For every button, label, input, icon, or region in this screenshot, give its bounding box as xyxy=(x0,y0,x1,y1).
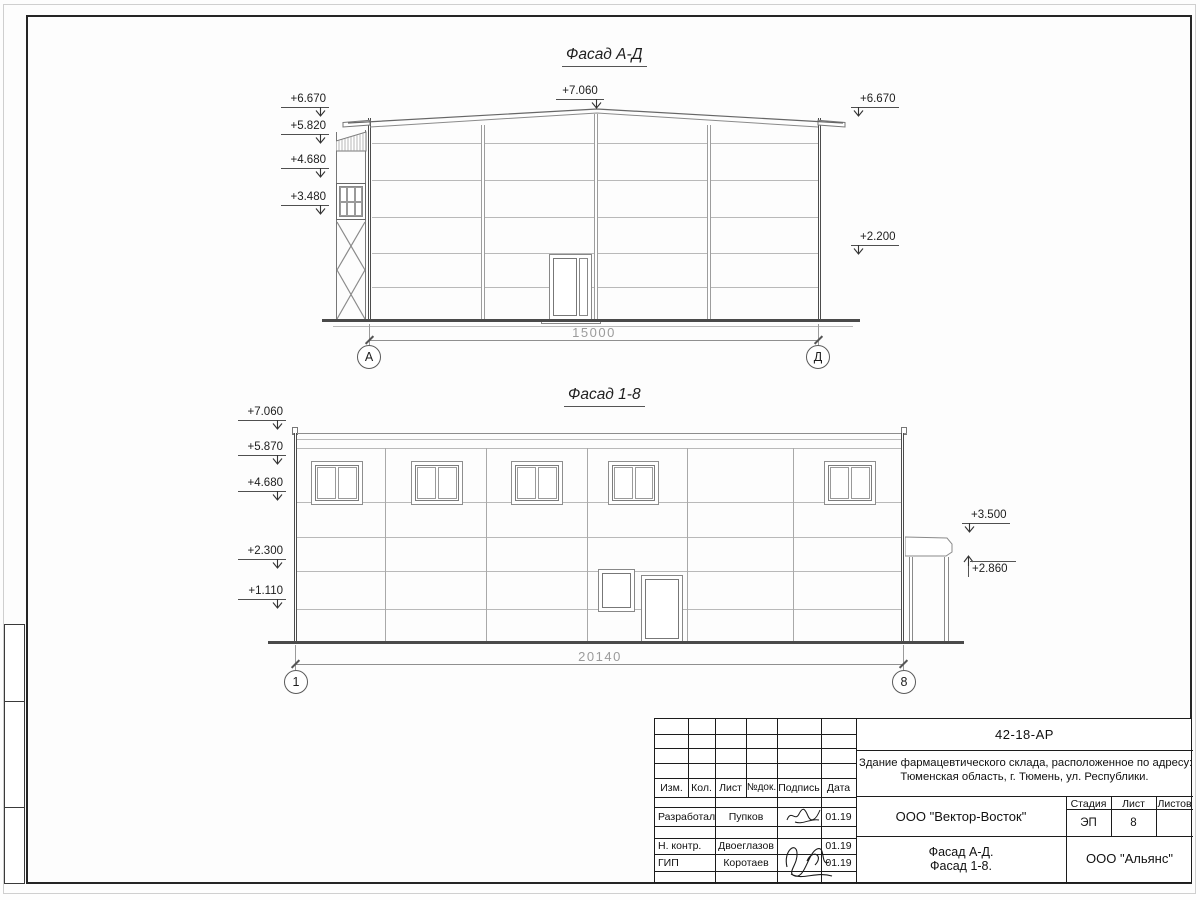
panel-line xyxy=(297,537,903,538)
sheet-number: 8 xyxy=(1111,817,1156,829)
signatory-name: Пупков xyxy=(715,811,777,823)
table-header: Дата xyxy=(821,782,856,794)
extension-line xyxy=(818,324,819,346)
column-line xyxy=(594,114,598,320)
elevation-mark: +2.860 xyxy=(970,561,1016,575)
window-pane xyxy=(317,467,336,499)
column-line xyxy=(587,448,588,641)
table-line xyxy=(856,836,1193,837)
margin-stamp-box xyxy=(4,701,25,808)
window-pane xyxy=(851,467,870,499)
elevation-mark: +6.670 xyxy=(281,93,329,108)
door-leaf xyxy=(553,258,577,316)
elevation-mark: +4.680 xyxy=(281,154,329,169)
elevation-arrow-icon xyxy=(271,455,284,468)
elevation-arrow-icon xyxy=(314,205,327,218)
signature-scribble xyxy=(783,807,823,825)
project-description-line2: Тюменская область, г. Тюмень, ул. Респуб… xyxy=(859,771,1190,783)
window-pane xyxy=(338,467,357,499)
dimension-line xyxy=(295,664,904,665)
elevation-value: +5.870 xyxy=(238,441,286,456)
window xyxy=(824,461,876,505)
tower-window-pane xyxy=(347,202,354,217)
elevation-mark: +7.060 xyxy=(238,406,286,421)
signature-scribble xyxy=(779,835,837,881)
canopy xyxy=(905,535,957,559)
elevation-mark: +5.820 xyxy=(281,120,329,135)
project-description-line1: Здание фармацевтического склада, располо… xyxy=(859,757,1190,769)
signatory-name: Коротаев xyxy=(715,857,777,869)
dimension-text: 15000 xyxy=(549,325,639,340)
elevation-value: +6.670 xyxy=(851,93,899,108)
table-header: Изм. xyxy=(655,782,688,794)
elevation-value: +2.300 xyxy=(238,545,286,560)
door-leaf xyxy=(645,579,679,639)
signature-date: 01.19 xyxy=(821,811,856,823)
small-window xyxy=(598,569,635,612)
elevation-value: +4.680 xyxy=(281,154,329,169)
elevation-arrow-icon xyxy=(852,245,865,258)
axis-bubble-8: 8 xyxy=(892,670,916,694)
window-pane xyxy=(517,467,536,499)
elevation-mark: +2.300 xyxy=(238,545,286,560)
extension-line xyxy=(295,645,296,670)
panel-line xyxy=(297,502,903,503)
signatory-role: Н. контр. xyxy=(658,840,701,852)
tower-cross-bracing xyxy=(336,221,367,320)
column-line xyxy=(707,125,711,320)
table-line xyxy=(777,797,778,884)
elevation-mark: +6.670 xyxy=(851,93,899,108)
elevation-mark: +3.480 xyxy=(281,191,329,206)
table-line xyxy=(655,807,856,808)
sheet-header: Лист xyxy=(1111,798,1156,810)
margin-stamp-box xyxy=(4,624,25,702)
elevation-value: +4.680 xyxy=(238,477,286,492)
tower-window-pane xyxy=(355,202,362,217)
document-number: 42-18-АР xyxy=(856,727,1193,742)
extension-line xyxy=(369,324,370,346)
stage-header: Стадия xyxy=(1066,798,1111,810)
wall-line xyxy=(901,433,904,642)
tower-window-pane xyxy=(347,187,354,202)
elevation-mark: +5.870 xyxy=(238,441,286,456)
elevation-value: +5.820 xyxy=(281,120,329,135)
tower-window-pane xyxy=(340,202,347,217)
entrance-door xyxy=(641,575,683,643)
ground-line xyxy=(322,319,860,322)
wall-line xyxy=(368,118,371,320)
elevation-value: +2.200 xyxy=(851,231,899,246)
window-pane xyxy=(830,467,849,499)
signatory-name: Двоеглазов xyxy=(715,840,777,852)
elevation-arrow-icon xyxy=(314,107,327,120)
facade-ad-title: Фасад А-Д xyxy=(562,46,647,67)
elevation-value: +1.110 xyxy=(238,585,286,600)
small-window-pane xyxy=(602,573,631,608)
window-pane xyxy=(635,467,654,499)
column-line xyxy=(481,125,485,320)
table-line xyxy=(655,734,856,735)
tower-window-pane xyxy=(340,187,347,202)
table-header: №док. xyxy=(746,782,777,793)
client-organization: ООО "Альянс" xyxy=(1066,851,1193,866)
axis-bubble-1: 1 xyxy=(284,670,308,694)
elevation-arrow-icon xyxy=(314,168,327,181)
fascia-line xyxy=(296,448,904,449)
facade-18-title: Фасад 1-8 xyxy=(564,386,645,407)
elevation-arrow-icon xyxy=(314,134,327,147)
signatory-role: ГИП xyxy=(658,857,679,869)
window xyxy=(411,461,463,505)
elevation-mark: +4.680 xyxy=(238,477,286,492)
fascia-line xyxy=(296,439,904,440)
title-block: Изм. Кол. Лист №док. Подпись Дата Разраб… xyxy=(654,718,1192,883)
elevation-mark: +1.110 xyxy=(238,585,286,600)
entrance-door xyxy=(549,254,592,320)
window-pane xyxy=(614,467,633,499)
dimension-line xyxy=(369,340,819,341)
column-line xyxy=(385,448,386,641)
drawing-content-line1: Фасад А-Д. xyxy=(856,845,1066,859)
sheets-header: Листов xyxy=(1156,798,1193,810)
ground-line xyxy=(268,641,964,644)
window-pane xyxy=(538,467,557,499)
signatory-role: Разработал xyxy=(658,811,715,823)
elevation-arrow-icon xyxy=(963,523,976,536)
elevation-arrow-icon xyxy=(852,107,865,120)
elevation-mark: +2.200 xyxy=(851,231,899,246)
elevation-mark-ridge: +7.060 xyxy=(556,85,604,100)
tower-window xyxy=(336,183,366,220)
elevation-value: +7.060 xyxy=(556,85,604,100)
parapet-top-line xyxy=(293,433,907,434)
axis-bubble-d: Д xyxy=(806,345,830,369)
table-line xyxy=(655,748,856,749)
canopy-post xyxy=(944,557,949,642)
table-header: Подпись xyxy=(777,782,821,794)
window xyxy=(511,461,563,505)
axis-bubble-a: А xyxy=(357,345,381,369)
table-header: Кол. xyxy=(688,782,715,794)
eave-left xyxy=(343,120,370,127)
table-line xyxy=(655,826,856,827)
door-side-panel xyxy=(579,258,588,316)
column-line xyxy=(793,448,794,641)
elevation-arrow-icon xyxy=(271,599,284,612)
table-line xyxy=(856,750,1193,751)
elevation-mark: +3.500 xyxy=(962,509,1010,524)
window-pane xyxy=(438,467,457,499)
drawing-content-line2: Фасад 1-8. xyxy=(856,859,1066,873)
window xyxy=(311,461,363,505)
elevation-arrow-icon xyxy=(271,559,284,572)
wall-line xyxy=(294,433,297,642)
elevation-value: +6.670 xyxy=(281,93,329,108)
margin-stamp-box xyxy=(4,807,25,884)
table-line xyxy=(655,797,856,798)
elevation-value: +3.500 xyxy=(962,509,1010,524)
elevation-value: +2.860 xyxy=(972,563,1008,575)
column-line xyxy=(687,448,688,641)
dimension-text: 20140 xyxy=(555,649,645,664)
table-line xyxy=(655,763,856,764)
elevation-arrow-icon xyxy=(271,420,284,433)
window-pane xyxy=(417,467,436,499)
stage-value: ЭП xyxy=(1066,817,1111,829)
canopy-post xyxy=(909,557,913,642)
column-line xyxy=(486,448,487,641)
extension-line xyxy=(903,645,904,670)
tower-window-pane xyxy=(355,187,362,202)
elevation-arrow-icon xyxy=(590,99,603,112)
table-line xyxy=(655,778,856,779)
elevation-arrow-icon xyxy=(271,491,284,504)
window xyxy=(608,461,659,505)
elevation-value: +7.060 xyxy=(238,406,286,421)
drawing-sheet: Фасад А-Д xyxy=(0,0,1200,900)
elevation-value: +3.480 xyxy=(281,191,329,206)
table-header: Лист xyxy=(715,782,746,794)
wall-line xyxy=(818,118,821,320)
designer-organization: ООО "Вектор-Восток" xyxy=(856,809,1066,824)
